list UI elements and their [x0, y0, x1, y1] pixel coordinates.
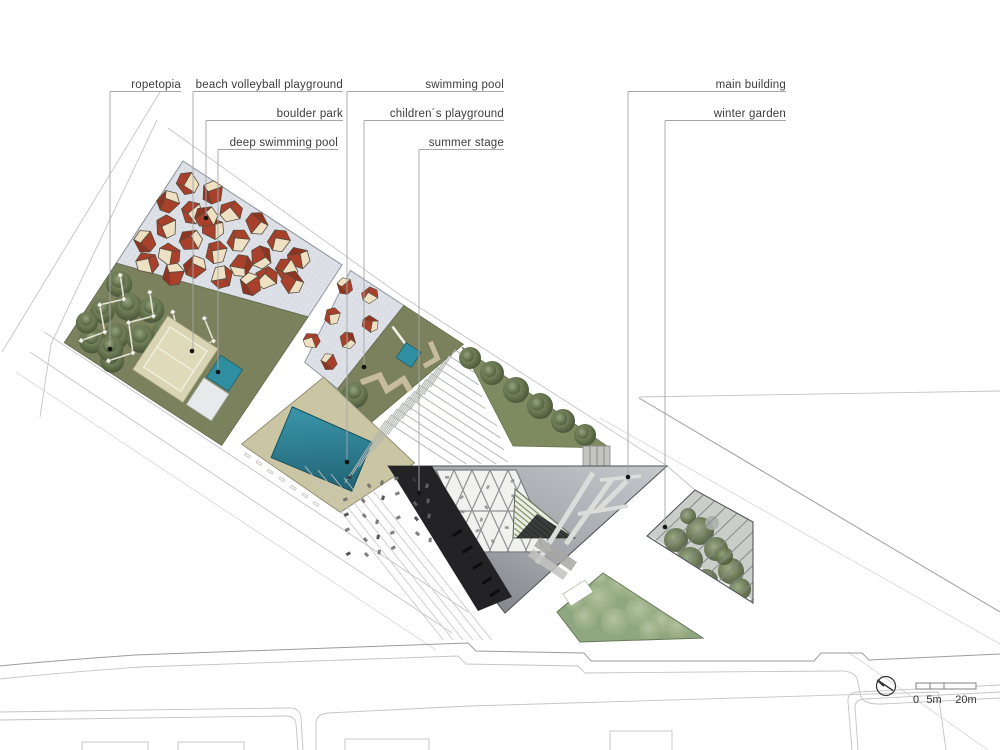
- label-summer-stage: summer stage: [429, 137, 504, 149]
- lawn-slope: [459, 347, 610, 448]
- label-ropetopia: ropetopia: [131, 79, 181, 91]
- scale-20m: 20m: [955, 694, 976, 706]
- label-winter-garden: winter garden: [713, 108, 786, 120]
- garden-parterre: [557, 568, 703, 642]
- label-childrens-playground: children´s playground: [390, 108, 504, 120]
- label-beach-volleyball: beach volleyball playground: [196, 79, 343, 91]
- winter-garden: [645, 486, 801, 603]
- site-plan: ropetopia beach volleyball playground bo…: [0, 0, 1000, 750]
- roads-and-blocks: [0, 643, 1000, 750]
- road-south-edge: [0, 656, 1000, 704]
- site-plan-canvas: ropetopia beach volleyball playground bo…: [0, 0, 1000, 750]
- label-boulder-park: boulder park: [277, 108, 343, 120]
- label-swimming-pool: swimming pool: [425, 79, 504, 91]
- annotation-labels: ropetopia beach volleyball playground bo…: [131, 79, 786, 149]
- label-main-building: main building: [716, 79, 786, 91]
- north-arrow-icon: [877, 677, 896, 696]
- scale-0: 0: [913, 694, 919, 706]
- scale-5m: 5m: [926, 694, 941, 706]
- label-deep-swimming-pool: deep swimming pool: [230, 137, 338, 149]
- road-north-edge: [0, 643, 1000, 666]
- stairs: [583, 446, 610, 466]
